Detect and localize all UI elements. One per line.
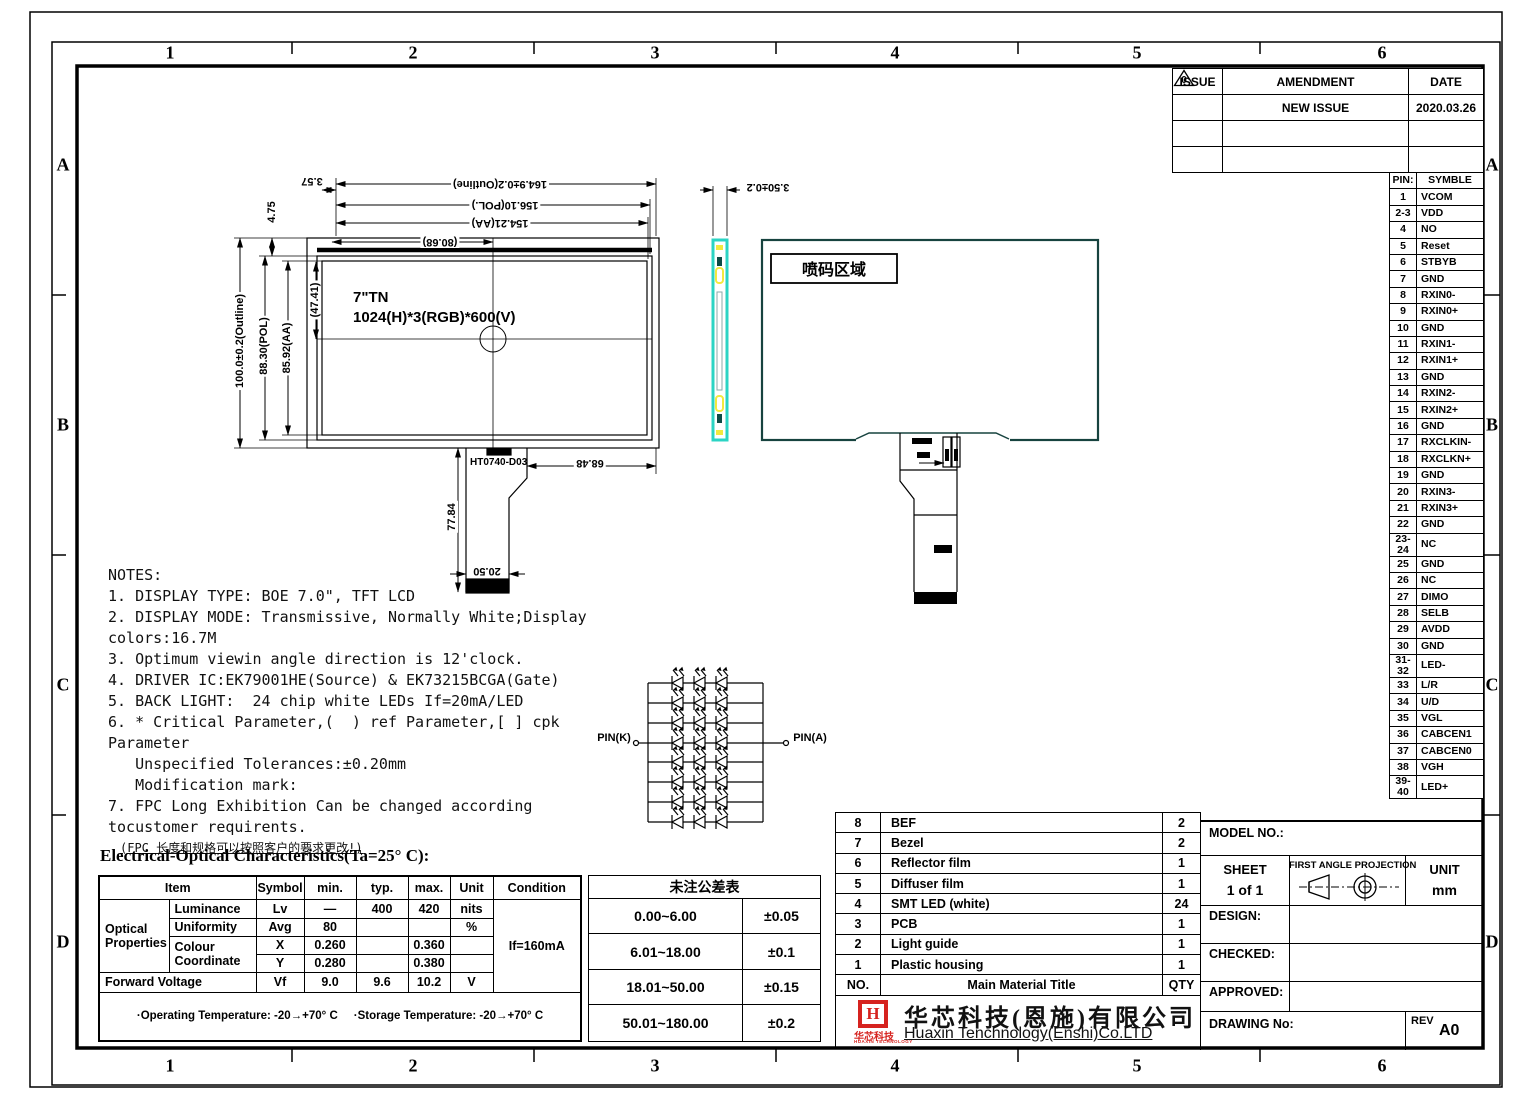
panel-size-text: 7"TN xyxy=(353,289,388,306)
material-no: 6 xyxy=(836,853,881,873)
min-cell: 0.260 xyxy=(304,936,356,954)
condition-cell: If=160mA xyxy=(493,899,581,992)
max-header: max. xyxy=(408,876,450,899)
range-cell: 6.01~18.00 xyxy=(589,934,743,970)
material-row: 5Diffuser film1 xyxy=(836,873,1201,893)
pin-symbol: RXCLKN+ xyxy=(1417,451,1484,467)
approved-label: APPROVED: xyxy=(1209,985,1283,999)
pin-row: 20RXIN3- xyxy=(1390,484,1484,500)
pin-symbol: VGH xyxy=(1417,759,1484,775)
grid-col-label: 4 xyxy=(891,43,900,64)
notes-line: colors:16.7M xyxy=(108,629,216,647)
pin-symbol: NO xyxy=(1417,222,1484,238)
notes-line: Modification mark: xyxy=(108,776,298,794)
pin-symbol: DIMO xyxy=(1417,589,1484,605)
material-row: 8BEF2 xyxy=(836,813,1201,833)
date-cell: 2020.03.26 xyxy=(1409,95,1484,121)
symbol-header: Symbol xyxy=(256,876,304,899)
company-block: H 华芯科技 HUAXIN TECHNOLOGY 华芯科技(恩施)有限公司 Hu… xyxy=(835,995,1200,1048)
pin-symbol: NC xyxy=(1417,572,1484,588)
pin-row: 35VGL xyxy=(1390,710,1484,726)
pin-row: 6STBYB xyxy=(1390,254,1484,270)
pin-symbol: GND xyxy=(1417,369,1484,385)
typ-cell: 400 xyxy=(356,899,408,918)
pin-symbol: GND xyxy=(1417,271,1484,287)
pin-row: 28SELB xyxy=(1390,605,1484,621)
pin-symbol: U/D xyxy=(1417,694,1484,710)
revision-cell: 0 xyxy=(1173,95,1223,121)
approved-row: APPROVED: xyxy=(1201,982,1484,1012)
pin-row: 1VCOM xyxy=(1390,189,1484,205)
dim-pol-width: 156.10(POL.) xyxy=(470,199,541,211)
pin-symbol: AVDD xyxy=(1417,622,1484,638)
symbol-cell: Lv xyxy=(256,899,304,918)
led-pin-a-label: PIN(A) xyxy=(793,732,827,744)
pin-number: 27 xyxy=(1390,589,1417,605)
pin-symbol: RXIN2+ xyxy=(1417,402,1484,418)
pin-header-row: PIN:SYMBLE xyxy=(1390,173,1484,189)
pin-number: 13 xyxy=(1390,369,1417,385)
notes-line: tocustomer requirents. xyxy=(108,818,307,836)
symbol-col-header: SYMBLE xyxy=(1417,173,1484,189)
no-footer: NO. xyxy=(836,975,881,995)
material-no: 2 xyxy=(836,934,881,954)
optical-properties-group: OpticalProperties xyxy=(99,899,169,972)
max-cell: 420 xyxy=(408,899,450,918)
pin-row: 31-32LED- xyxy=(1390,654,1484,677)
pin-table: PIN:SYMBLE 1VCOM 2-3VDD 4NO 5Reset 6STBY… xyxy=(1389,172,1484,799)
min-cell: 9.0 xyxy=(304,972,356,992)
pin-number: 21 xyxy=(1390,500,1417,516)
typ-cell xyxy=(356,918,408,936)
fpc-part-number: HT0740-D03 xyxy=(470,457,527,468)
group-label: Properties xyxy=(105,936,167,950)
pin-number: 35 xyxy=(1390,710,1417,726)
group-label: Colour xyxy=(175,940,215,954)
tolerance-cell: ±0.2 xyxy=(743,1005,821,1042)
tolerance-row: 0.00~6.00±0.05 xyxy=(589,899,821,934)
max-cell: 10.2 xyxy=(408,972,450,992)
tolerance-title: 未注公差表 xyxy=(589,876,821,899)
pin-symbol: NC xyxy=(1417,533,1484,556)
tolerance-header-row: 未注公差表 xyxy=(589,876,821,899)
amendment-col-header: AMENDMENT xyxy=(1223,69,1409,95)
material-row: 3PCB1 xyxy=(836,914,1201,934)
side-view-linework xyxy=(700,186,740,440)
pin-row: 13GND xyxy=(1390,369,1484,385)
storage-temperature: ·Storage Temperature: -20→+70° C xyxy=(354,1010,543,1022)
back-view-linework xyxy=(762,240,1098,604)
amendment-cell xyxy=(1223,147,1409,173)
material-qty: 1 xyxy=(1163,853,1201,873)
max-cell: 0.360 xyxy=(408,936,450,954)
pin-number: 18 xyxy=(1390,451,1417,467)
sheet-value: 1 of 1 xyxy=(1201,882,1289,898)
design-label: DESIGN: xyxy=(1209,909,1261,923)
pin-row: 26NC xyxy=(1390,572,1484,588)
tolerance-row: 50.01~180.00±0.2 xyxy=(589,1005,821,1042)
grid-col-label: 6 xyxy=(1378,43,1387,64)
grid-row-label: D xyxy=(57,932,70,953)
pin-number: 29 xyxy=(1390,622,1417,638)
pin-number: 2-3 xyxy=(1390,205,1417,221)
material-qty: 2 xyxy=(1163,813,1201,833)
pin-number: 34 xyxy=(1390,694,1417,710)
pin-number: 23-24 xyxy=(1390,533,1417,556)
rev-value: A0 xyxy=(1439,1022,1459,1040)
pin-number: 14 xyxy=(1390,386,1417,402)
qty-footer: QTY xyxy=(1163,975,1201,995)
material-no: 3 xyxy=(836,914,881,934)
grid-col-label: 4 xyxy=(891,1056,900,1077)
pin-row: 9RXIN0+ xyxy=(1390,304,1484,320)
material-qty: 1 xyxy=(1163,934,1201,954)
notes-line: Unspecified Tolerances:±0.20mm xyxy=(108,755,406,773)
grid-row-label: B xyxy=(57,415,69,436)
pin-symbol: VGL xyxy=(1417,710,1484,726)
material-row: 6Reflector film1 xyxy=(836,853,1201,873)
coding-area-label: 喷码区域 xyxy=(802,256,866,280)
pin-row: 2-3VDD xyxy=(1390,205,1484,221)
pin-number: 19 xyxy=(1390,468,1417,484)
pin-row: 18RXCLKN+ xyxy=(1390,451,1484,467)
grid-col-label: 1 xyxy=(166,43,175,64)
material-no: 8 xyxy=(836,813,881,833)
grid-col-label: 3 xyxy=(651,1056,660,1077)
amendment-cell xyxy=(1223,121,1409,147)
unit-cell xyxy=(450,954,493,972)
pin-symbol: RXIN3+ xyxy=(1417,500,1484,516)
pin-row: 5Reset xyxy=(1390,238,1484,254)
pin-row: 34U/D xyxy=(1390,694,1484,710)
grid-col-label: 5 xyxy=(1133,1056,1142,1077)
pin-row: 39-40LED+ xyxy=(1390,776,1484,799)
grid-col-label: 1 xyxy=(166,1056,175,1077)
material-no: 4 xyxy=(836,894,881,914)
unit-cell: V xyxy=(450,972,493,992)
company-logo: H xyxy=(858,1000,888,1028)
grid-row-label: B xyxy=(1486,415,1498,436)
eo-characteristics-table: Item Symbol min. typ. max. Unit Conditio… xyxy=(98,875,582,1042)
notes-line: 7. FPC Long Exhibition Can be changed ac… xyxy=(108,797,532,815)
led-circuit-linework xyxy=(634,667,789,829)
notes-line: 6. * Critical Parameter,( ) ref Paramete… xyxy=(108,713,560,731)
grid-col-label: 5 xyxy=(1133,43,1142,64)
revision-cell xyxy=(1173,121,1223,147)
rev-label: REV xyxy=(1411,1015,1434,1027)
dim-aa-width: 154.21(AA) xyxy=(470,217,531,229)
pin-symbol: VCOM xyxy=(1417,189,1484,205)
company-name-en: Huaxin Tenchnology(Enshi)Co.LTD xyxy=(904,1025,1152,1043)
material-name: SMT LED (white) xyxy=(881,894,1163,914)
typ-cell xyxy=(356,936,408,954)
material-name: Diffuser film xyxy=(881,873,1163,893)
material-row: 2Light guide1 xyxy=(836,934,1201,954)
divider xyxy=(1405,1012,1406,1050)
unit-cell xyxy=(450,936,493,954)
material-row: 4SMT LED (white)24 xyxy=(836,894,1201,914)
dim-half-height: (47.41) xyxy=(309,281,321,320)
eo-row-luminance: OpticalProperties Luminance Lv — 400 420… xyxy=(99,899,581,918)
material-name: Bezel xyxy=(881,833,1163,853)
issue-row: 0 NEW ISSUE 2020.03.26 xyxy=(1173,95,1484,121)
drawing-no-row: DRAWING No: REV A0 xyxy=(1201,1012,1484,1050)
material-no: 1 xyxy=(836,955,881,975)
pin-symbol: GND xyxy=(1417,320,1484,336)
pin-number: 15 xyxy=(1390,402,1417,418)
dim-gap-357: 3.57 xyxy=(299,175,324,187)
pin-number: 9 xyxy=(1390,304,1417,320)
symbol-cell: Y xyxy=(256,954,304,972)
pin-symbol: RXCLKIN- xyxy=(1417,435,1484,451)
pin-symbol: Reset xyxy=(1417,238,1484,254)
pin-number: 36 xyxy=(1390,727,1417,743)
pin-number: 38 xyxy=(1390,759,1417,775)
pin-number: 4 xyxy=(1390,222,1417,238)
pin-row: 14RXIN2- xyxy=(1390,386,1484,402)
pin-number: 28 xyxy=(1390,605,1417,621)
issue-row xyxy=(1173,121,1484,147)
condition-header: Condition xyxy=(493,876,581,899)
unit-cell: nits xyxy=(450,899,493,918)
panel-spec-text: 7"TN1024(H)*3(RGB)*600(V) xyxy=(353,288,516,328)
material-row: 7Bezel2 xyxy=(836,833,1201,853)
date-cell xyxy=(1409,147,1484,173)
dim-outline-width: 164.9±0.2(Outline) xyxy=(451,178,549,190)
unit-label: UNIT xyxy=(1405,862,1484,877)
material-row: 1Plastic housing1 xyxy=(836,955,1201,975)
unit-value: mm xyxy=(1405,882,1484,898)
pin-symbol: GND xyxy=(1417,517,1484,533)
pin-number: 1 xyxy=(1390,189,1417,205)
material-table: 8BEF2 7Bezel2 6Reflector film1 5Diffuser… xyxy=(835,812,1201,996)
pin-row: 36CABCEN1 xyxy=(1390,727,1484,743)
pin-row: 7GND xyxy=(1390,271,1484,287)
notes-line: 2. DISPLAY MODE: Transmissive, Normally … xyxy=(108,608,587,626)
divider xyxy=(1289,982,1290,1012)
pin-symbol: LED+ xyxy=(1417,776,1484,799)
eo-header-row: Item Symbol min. typ. max. Unit Conditio… xyxy=(99,876,581,899)
material-title-footer: Main Material Title xyxy=(881,975,1163,995)
pin-number: 33 xyxy=(1390,677,1417,693)
min-cell: — xyxy=(304,899,356,918)
pin-row: 23-24NC xyxy=(1390,533,1484,556)
pin-number: 31-32 xyxy=(1390,654,1417,677)
range-cell: 0.00~6.00 xyxy=(589,899,743,934)
sheet-label: SHEET xyxy=(1201,862,1289,877)
sheet-projection-row: SHEET 1 of 1 FIRST ANGLE PROJECTION UNIT… xyxy=(1201,856,1484,906)
item-cell: Uniformity xyxy=(169,918,256,936)
symbol-cell: Vf xyxy=(256,972,304,992)
dim-fpc-width: 68.48 xyxy=(574,457,606,469)
notes-line: 1. DISPLAY TYPE: BOE 7.0", TFT LCD xyxy=(108,587,415,605)
pin-number: 12 xyxy=(1390,353,1417,369)
dim-half-width: (80.68) xyxy=(421,236,460,248)
max-cell xyxy=(408,918,450,936)
pin-number: 25 xyxy=(1390,556,1417,572)
max-cell: 0.380 xyxy=(408,954,450,972)
range-cell: 50.01~180.00 xyxy=(589,1005,743,1042)
dim-pol-height: 88.30(POL) xyxy=(258,315,270,376)
pin-number: 17 xyxy=(1390,435,1417,451)
tolerance-cell: ±0.15 xyxy=(743,970,821,1005)
notes-line: NOTES: xyxy=(108,566,162,584)
pin-number: 10 xyxy=(1390,320,1417,336)
material-qty: 24 xyxy=(1163,894,1201,914)
item-cell: Forward Voltage xyxy=(99,972,256,992)
grid-row-label: A xyxy=(57,155,70,176)
checked-row: CHECKED: xyxy=(1201,944,1484,982)
amendment-cell: NEW ISSUE xyxy=(1223,95,1409,121)
pin-number: 26 xyxy=(1390,572,1417,588)
pin-number: 16 xyxy=(1390,418,1417,434)
min-header: min. xyxy=(304,876,356,899)
model-no-row: MODEL NO.: xyxy=(1201,822,1484,856)
pin-symbol: LED- xyxy=(1417,654,1484,677)
dim-thickness: 3.50±0.2 xyxy=(745,181,792,193)
tolerance-row: 6.01~18.00±0.1 xyxy=(589,934,821,970)
pin-row: 38VGH xyxy=(1390,759,1484,775)
eo-section-title: Electrical-Optical Characteristics(Ta=25… xyxy=(100,846,429,866)
material-name: Light guide xyxy=(881,934,1163,954)
dim-fpc-height: 77.84 xyxy=(446,501,458,533)
pin-number: 22 xyxy=(1390,517,1417,533)
notes-line: 3. Optimum viewin angle direction is 12'… xyxy=(108,650,523,668)
pin-row: 16GND xyxy=(1390,418,1484,434)
grid-col-label: 6 xyxy=(1378,1056,1387,1077)
material-qty: 1 xyxy=(1163,873,1201,893)
grid-row-label: C xyxy=(1486,675,1499,696)
date-cell xyxy=(1409,121,1484,147)
notes-line: 4. DRIVER IC:EK79001HE(Source) & EK73215… xyxy=(108,671,560,689)
eo-footer-row: ·Operating Temperature: -20→+70° C ·Stor… xyxy=(99,992,581,1041)
pin-symbol: STBYB xyxy=(1417,254,1484,270)
pin-row: 10GND xyxy=(1390,320,1484,336)
pin-symbol: RXIN3- xyxy=(1417,484,1484,500)
pin-row: 15RXIN2+ xyxy=(1390,402,1484,418)
divider xyxy=(1289,906,1290,944)
title-block: MODEL NO.: SHEET 1 of 1 FIRST ANGLE PROJ… xyxy=(1200,820,1484,1050)
dim-outline-height: 100.0±0.2(Outline) xyxy=(234,292,246,390)
pin-symbol: GND xyxy=(1417,556,1484,572)
operating-temperature: ·Operating Temperature: -20→+70° C xyxy=(137,1010,338,1022)
model-no-label: MODEL NO.: xyxy=(1209,826,1284,840)
first-angle-projection-icon xyxy=(1297,872,1401,902)
issue-header-row: ISSUE AMENDMENT DATE xyxy=(1173,69,1484,95)
tolerance-cell: ±0.05 xyxy=(743,899,821,934)
symbol-cell: Avg xyxy=(256,918,304,936)
tolerance-table: 未注公差表 0.00~6.00±0.05 6.01~18.00±0.1 18.0… xyxy=(588,875,821,1042)
material-name: Reflector film xyxy=(881,853,1163,873)
pin-row: 11RXIN1- xyxy=(1390,336,1484,352)
material-name: PCB xyxy=(881,914,1163,934)
grid-col-label: 3 xyxy=(651,43,660,64)
issue-table: ISSUE AMENDMENT DATE 0 NEW ISSUE 2020.03… xyxy=(1172,68,1484,173)
pin-row: 29AVDD xyxy=(1390,622,1484,638)
pin-number: 20 xyxy=(1390,484,1417,500)
material-footer-row: NO.Main Material TitleQTY xyxy=(836,975,1201,995)
pin-number: 39-40 xyxy=(1390,776,1417,799)
pin-row: 19GND xyxy=(1390,468,1484,484)
grid-row-label: C xyxy=(57,675,70,696)
pin-row: 30GND xyxy=(1390,638,1484,654)
dim-aa-height: 85.92(AA) xyxy=(281,321,293,376)
symbol-cell: X xyxy=(256,936,304,954)
pin-symbol: SELB xyxy=(1417,605,1484,621)
notes-line: Parameter xyxy=(108,734,189,752)
revision-cell xyxy=(1173,147,1223,173)
pin-number: 11 xyxy=(1390,336,1417,352)
min-cell: 80 xyxy=(304,918,356,936)
material-qty: 1 xyxy=(1163,914,1201,934)
temperature-footer: ·Operating Temperature: -20→+70° C ·Stor… xyxy=(99,992,581,1041)
pin-symbol: GND xyxy=(1417,468,1484,484)
pin-symbol: CABCEN0 xyxy=(1417,743,1484,759)
grid-row-label: A xyxy=(1486,155,1499,176)
pin-number: 8 xyxy=(1390,287,1417,303)
drawing-no-label: DRAWING No: xyxy=(1209,1017,1294,1031)
typ-header: typ. xyxy=(356,876,408,899)
pin-number: 7 xyxy=(1390,271,1417,287)
material-name: BEF xyxy=(881,813,1163,833)
pin-symbol: L/R xyxy=(1417,677,1484,693)
dim-gap-475: 4.75 xyxy=(266,199,278,224)
unit-header: Unit xyxy=(450,876,493,899)
pin-row: 25GND xyxy=(1390,556,1484,572)
range-cell: 18.01~50.00 xyxy=(589,970,743,1005)
material-name: Plastic housing xyxy=(881,955,1163,975)
divider xyxy=(1289,944,1290,982)
pin-row: 12RXIN1+ xyxy=(1390,353,1484,369)
dim-fpc-connector-width: 20.50 xyxy=(471,565,503,577)
grid-col-label: 2 xyxy=(409,43,418,64)
pin-col-header: PIN: xyxy=(1390,173,1417,189)
pin-row: 37CABCEN0 xyxy=(1390,743,1484,759)
item-header: Item xyxy=(99,876,256,899)
item-cell: Luminance xyxy=(169,899,256,918)
design-row: DESIGN: xyxy=(1201,906,1484,944)
pin-symbol: RXIN1- xyxy=(1417,336,1484,352)
min-cell: 0.280 xyxy=(304,954,356,972)
pin-symbol: RXIN2- xyxy=(1417,386,1484,402)
checked-label: CHECKED: xyxy=(1209,947,1275,961)
tolerance-row: 18.01~50.00±0.15 xyxy=(589,970,821,1005)
pin-row: 27DIMO xyxy=(1390,589,1484,605)
pin-number: 30 xyxy=(1390,638,1417,654)
issue-row xyxy=(1173,147,1484,173)
pin-symbol: RXIN1+ xyxy=(1417,353,1484,369)
pin-row: 4NO xyxy=(1390,222,1484,238)
pin-row: 22GND xyxy=(1390,517,1484,533)
pin-row: 17RXCLKIN- xyxy=(1390,435,1484,451)
pin-symbol: RXIN0+ xyxy=(1417,304,1484,320)
material-qty: 1 xyxy=(1163,955,1201,975)
tolerance-cell: ±0.1 xyxy=(743,934,821,970)
typ-cell: 9.6 xyxy=(356,972,408,992)
pin-row: 8RXIN0- xyxy=(1390,287,1484,303)
group-label: Optical xyxy=(105,922,147,936)
typ-cell xyxy=(356,954,408,972)
drawing-sheet: 1 2 3 4 5 6 1 2 3 4 5 6 A B C D A B C D … xyxy=(0,0,1515,1095)
projection-label: FIRST ANGLE PROJECTION xyxy=(1289,860,1405,871)
pin-symbol: GND xyxy=(1417,638,1484,654)
pin-symbol: GND xyxy=(1417,418,1484,434)
pin-number: 37 xyxy=(1390,743,1417,759)
logo-letter: H xyxy=(866,1004,879,1024)
unit-cell: % xyxy=(450,918,493,936)
notes-line: 5. BACK LIGHT: 24 chip white LEDs If=20m… xyxy=(108,692,523,710)
date-col-header: DATE xyxy=(1409,69,1484,95)
